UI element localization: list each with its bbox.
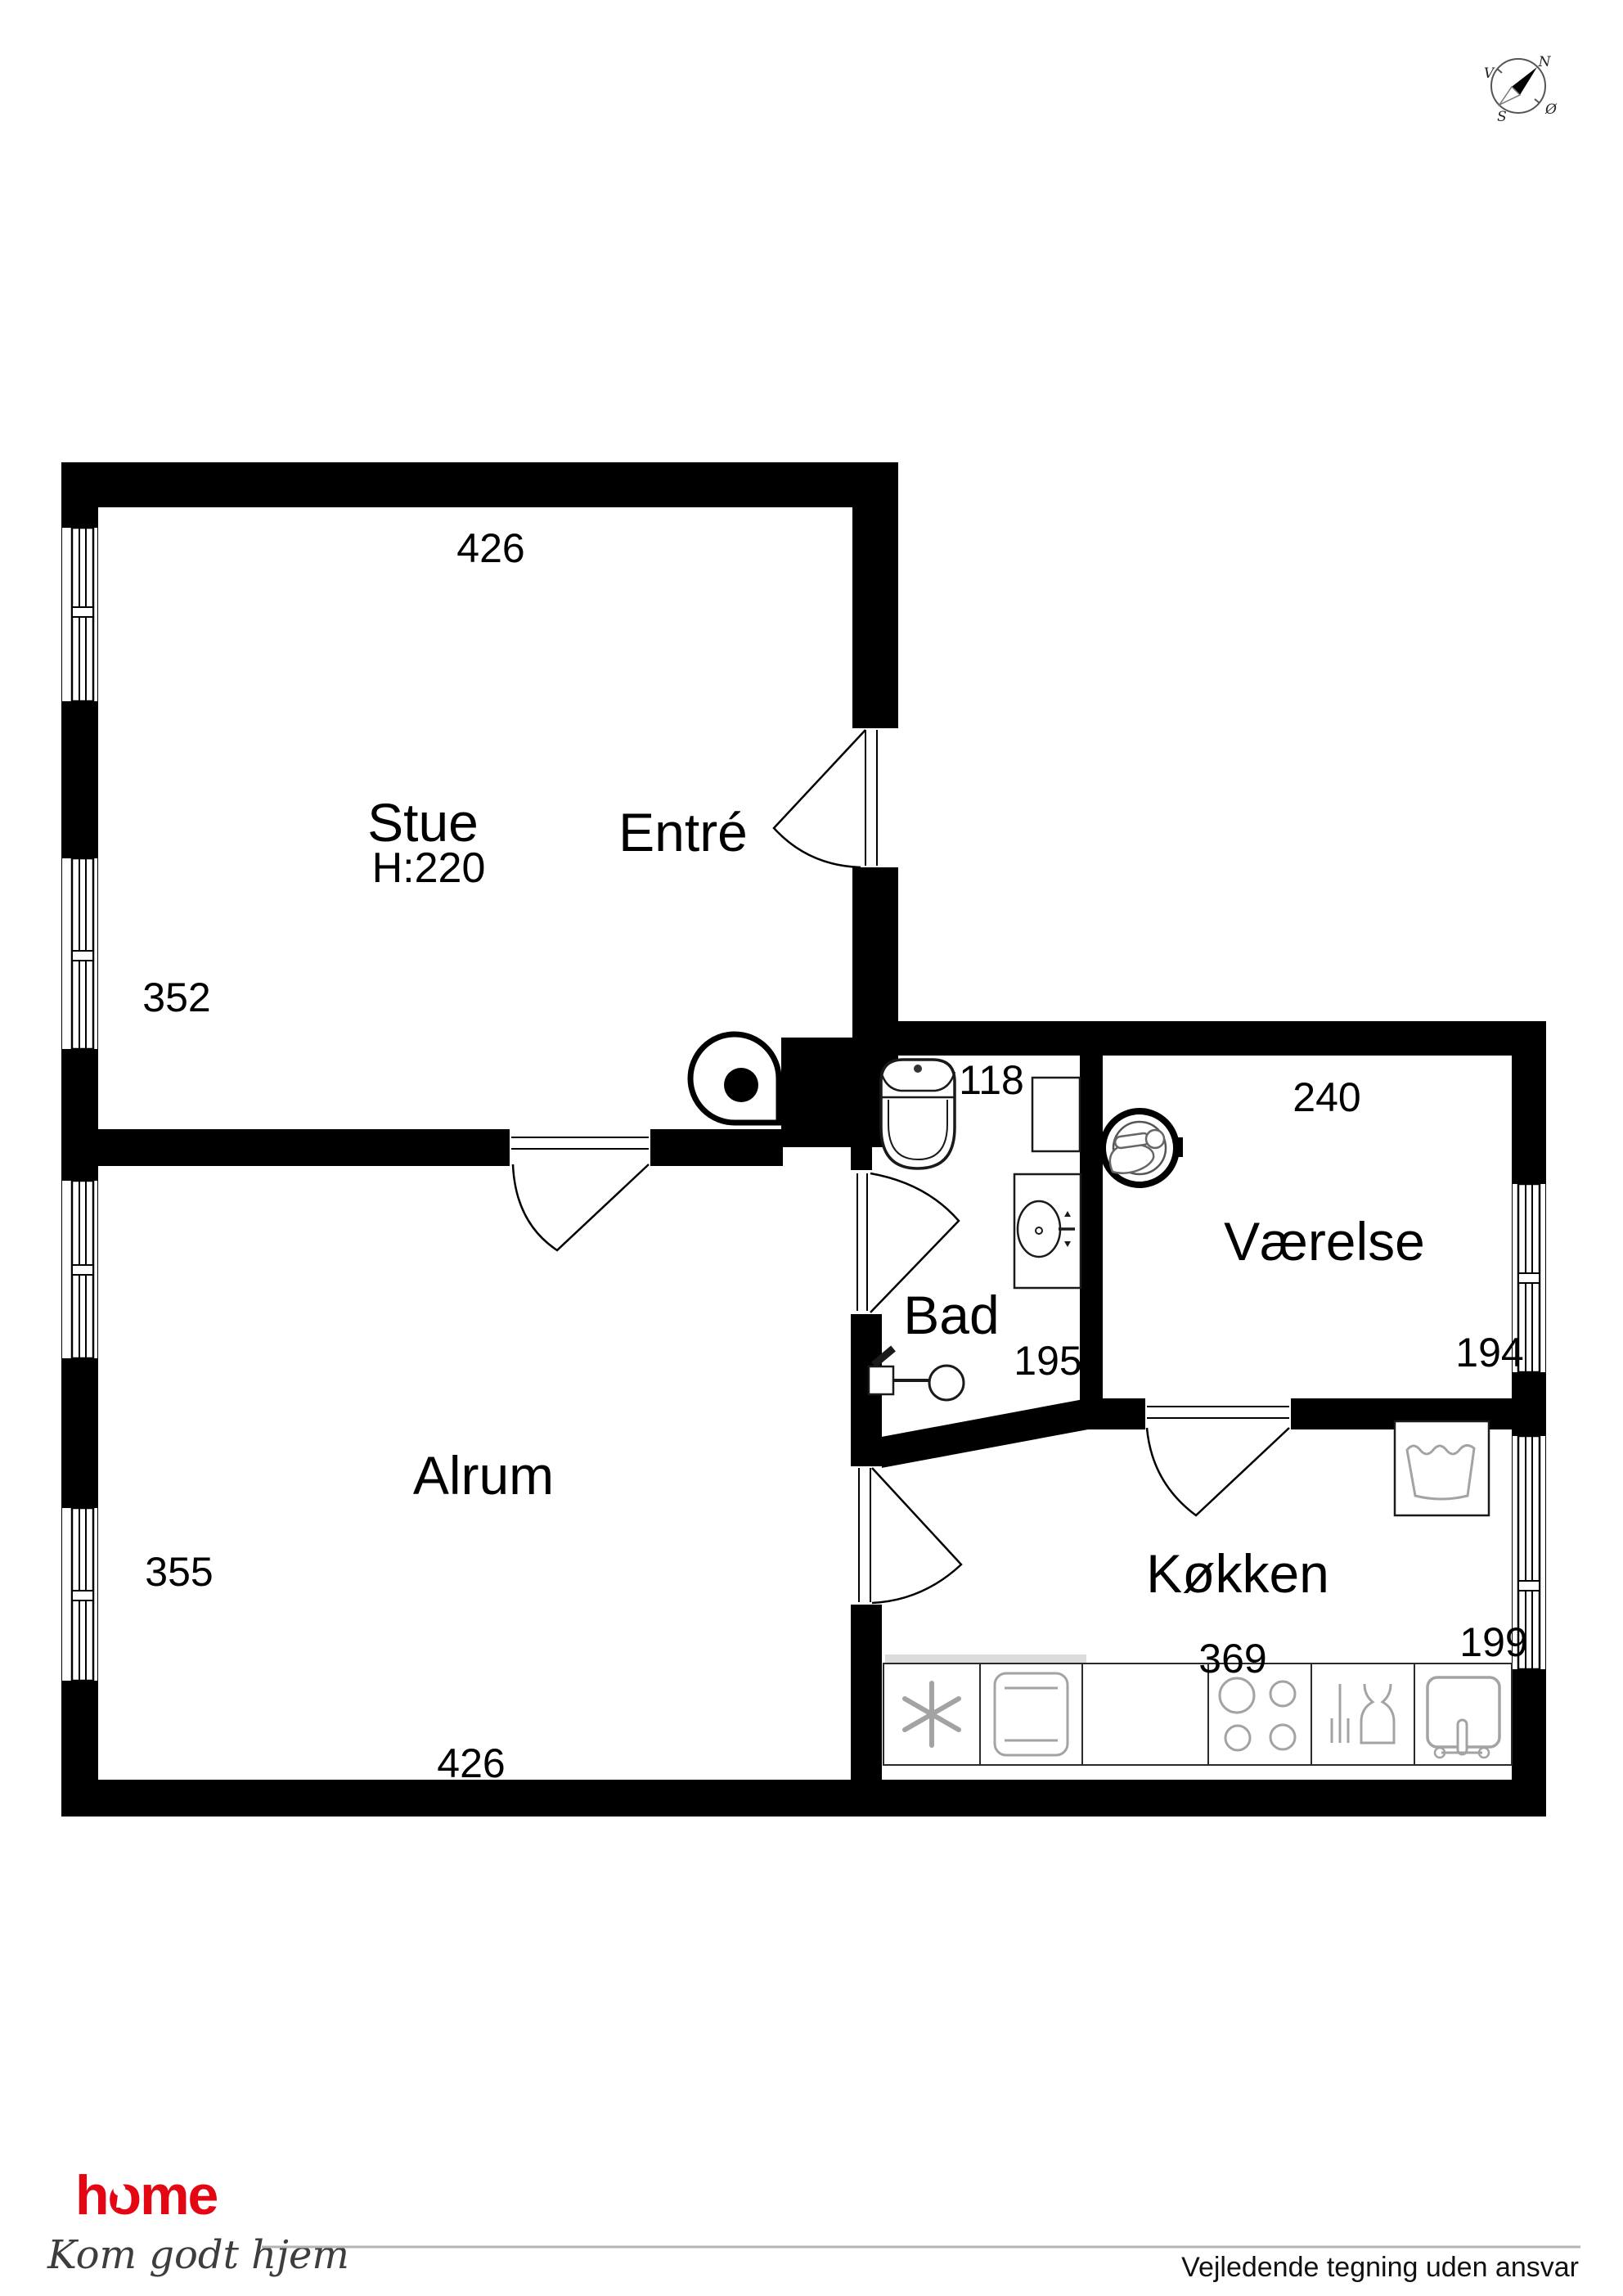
logo-keyhole-icon	[114, 2184, 126, 2196]
dim-bad-width: 118	[959, 1057, 1024, 1103]
door-alrum-kokken	[851, 1466, 961, 1605]
dim-kokken-depth: 199	[1459, 1619, 1527, 1665]
cabinet-icon	[1032, 1078, 1080, 1151]
window-alrum-lower	[62, 1508, 97, 1681]
compass-north: N	[1538, 54, 1552, 70]
round-washbasin-icon	[1095, 1111, 1183, 1185]
window-stue-lower	[62, 858, 97, 1049]
room-label-stue: Stue	[367, 792, 479, 853]
door-entre	[774, 728, 898, 867]
dim-bad-depth: 195	[1014, 1338, 1081, 1384]
home-logo: home	[75, 2164, 218, 2226]
room-label-vaerelse: Værelse	[1224, 1211, 1425, 1272]
dim-vaerelse-depth: 194	[1455, 1330, 1523, 1375]
floor-plan-drawing: 426 Stue H:220 Entré 352 118 240 Værelse…	[0, 0, 1623, 2296]
room-label-entre: Entré	[618, 802, 748, 862]
dim-alrum-depth: 355	[145, 1549, 213, 1595]
dim-alrum-width: 426	[437, 1740, 505, 1786]
compass-east: Ø	[1544, 101, 1558, 118]
door-stue-alrum	[510, 1129, 650, 1250]
toilet-icon	[881, 1060, 955, 1168]
dim-vaerelse-width: 240	[1293, 1074, 1360, 1120]
wood-stove-icon	[690, 1034, 779, 1123]
dim-kokken-width: 369	[1198, 1636, 1266, 1681]
kitchen-counter	[883, 1654, 1512, 1765]
compass-rose-icon: N V S Ø	[1484, 54, 1558, 125]
floor-plan-page: 426 Stue H:220 Entré 352 118 240 Værelse…	[0, 0, 1623, 2296]
washing-machine-icon	[1395, 1421, 1489, 1515]
walls	[61, 462, 1546, 1817]
counter-section-worktop	[1082, 1663, 1208, 1765]
shower-icon	[869, 1348, 964, 1400]
dim-stue-width: 426	[456, 525, 524, 571]
dim-stue-depth: 352	[142, 975, 210, 1020]
window-stue-upper	[62, 528, 97, 701]
room-label-kokken: Køkken	[1146, 1543, 1329, 1604]
room-label-bad: Bad	[903, 1285, 999, 1345]
ceiling-height-stue: H:220	[372, 844, 486, 892]
compass-west: V	[1484, 65, 1495, 82]
door-vaerelse-kokken	[1145, 1398, 1291, 1515]
room-label-alrum: Alrum	[413, 1445, 554, 1506]
compass-south: S	[1497, 109, 1507, 125]
disclaimer-text: Vejledende tegning uden ansvar	[1181, 2252, 1579, 2283]
window-alrum-upper	[62, 1181, 97, 1358]
branding: home Kom godt hjem Vejledende tegning ud…	[47, 2164, 1580, 2283]
washbasin-icon	[1014, 1174, 1081, 1288]
logo-tagline: Kom godt hjem	[47, 2232, 349, 2278]
